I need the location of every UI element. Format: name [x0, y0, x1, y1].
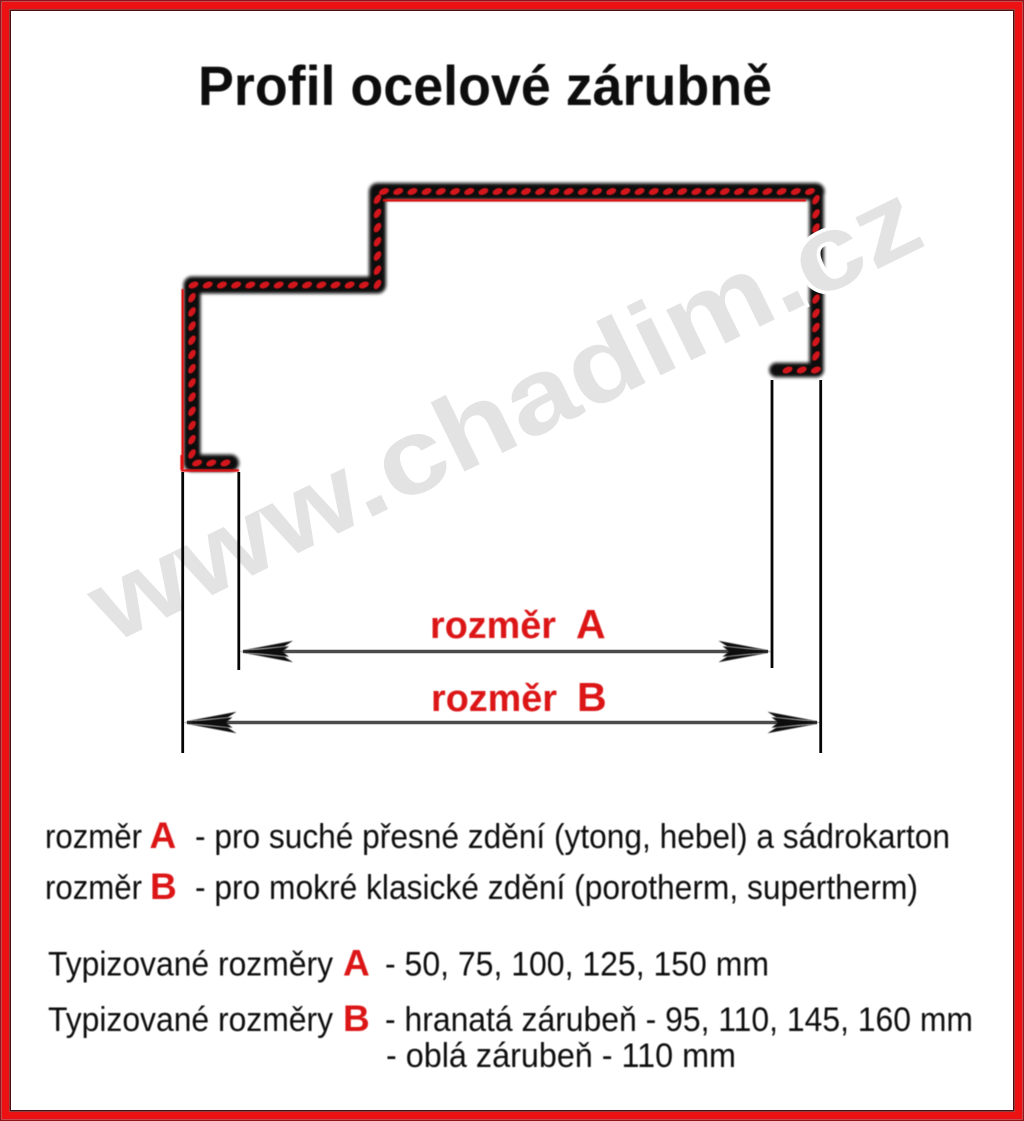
svg-text:Typizované rozměry: Typizované rozměry: [48, 946, 333, 984]
svg-text:- hranatá zárubeň - 95, 110,: - hranatá zárubeň - 95, 110, 145, 160 mm: [385, 1001, 973, 1039]
svg-text:Typizované rozměry: Typizované rozměry: [48, 1001, 333, 1039]
svg-text:- pro suché přesné zdění (yton: - pro suché přesné zdění (ytong, hebel) …: [195, 818, 950, 856]
svg-text:A: A: [343, 943, 370, 984]
svg-text:- 50, 75, 100, 125, 150 mm: - 50, 75, 100, 125, 150 mm: [385, 946, 769, 984]
svg-text:B: B: [150, 866, 177, 907]
svg-text:A: A: [150, 815, 177, 856]
svg-text:rozměr: rozměr: [430, 605, 556, 647]
svg-text:B: B: [577, 674, 607, 720]
svg-text:- oblá zárubeň - 110 mm: - oblá zárubeň - 110 mm: [386, 1037, 736, 1075]
svg-text:- pro mokré klasické zdění (po: - pro mokré klasické zdění (porotherm, s…: [195, 869, 918, 907]
svg-text:B: B: [343, 998, 370, 1039]
svg-text:rozměr: rozměr: [431, 678, 557, 720]
svg-text:A: A: [576, 601, 606, 647]
svg-text:Profil ocelové zárubně: Profil ocelové zárubně: [198, 54, 772, 117]
svg-text:rozměr: rozměr: [45, 869, 142, 907]
svg-text:rozměr: rozměr: [45, 818, 142, 856]
